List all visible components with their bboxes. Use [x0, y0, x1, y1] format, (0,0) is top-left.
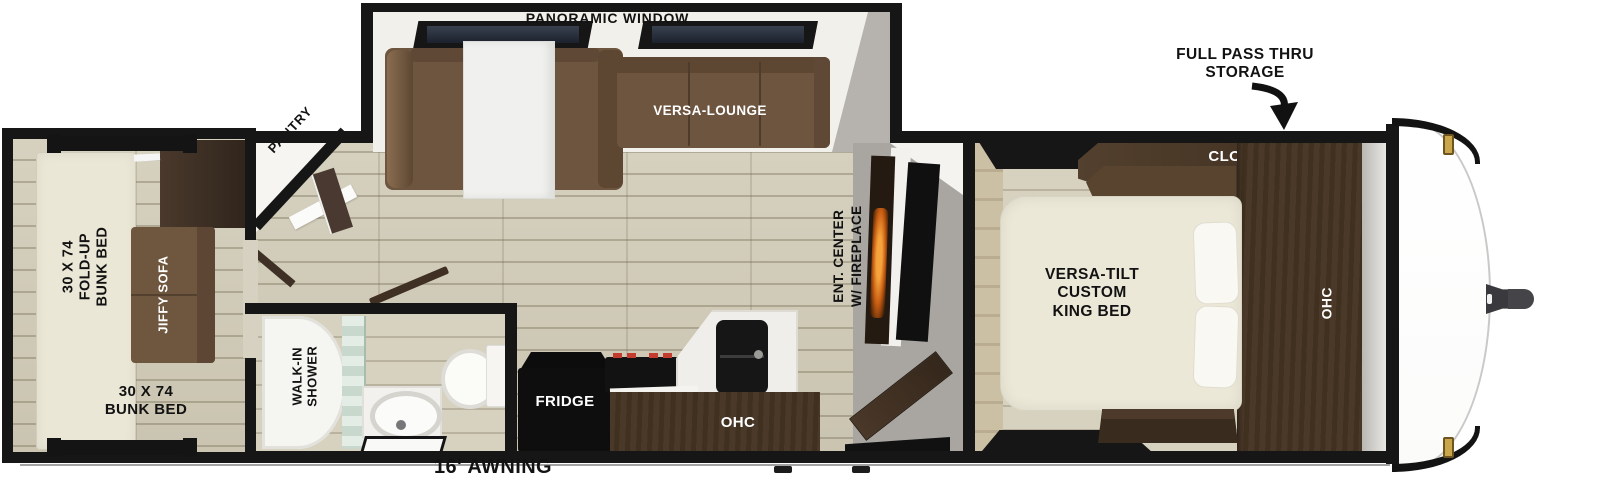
slideout-wall-left	[361, 3, 373, 143]
bedroom-wardrobe-ohc	[1237, 139, 1362, 455]
front-cap	[1399, 122, 1491, 468]
hitch-latch	[1487, 294, 1492, 304]
bathroom-top-wall	[245, 303, 517, 314]
bathroom-right-wall	[505, 303, 517, 463]
kitchen-ohc-label: OHC	[688, 414, 788, 432]
marker-light-icon	[1443, 437, 1454, 458]
wardrobe-side-gap	[1362, 143, 1386, 455]
awning-rail-line	[20, 464, 1390, 466]
bathroom-sink	[370, 391, 442, 441]
entry-step	[774, 466, 792, 473]
burner-knob	[649, 353, 658, 358]
awning-label: 16' AWNING	[413, 456, 573, 480]
slideout-wall-top	[361, 3, 902, 12]
entry-step	[852, 466, 870, 473]
burner-knob	[663, 353, 672, 358]
window-glass	[652, 26, 804, 43]
floorplan: VERSA-LOUNGE PANORAMIC WINDOW JIFFY SOFA…	[0, 0, 1600, 495]
bunkroom-walls	[2, 128, 256, 463]
fridge-label: FRIDGE	[518, 393, 612, 411]
front-cap-trim-bottom	[1392, 426, 1480, 472]
bedroom-top-wall	[975, 131, 1398, 143]
burner-knob	[613, 353, 622, 358]
bunkroom-window-top-cap	[183, 134, 197, 153]
burner-knob	[627, 353, 636, 358]
versa-lounge-arm-right	[814, 57, 830, 148]
sofa-bed-blanket	[463, 41, 555, 199]
front-cap-trim-top	[1392, 118, 1480, 164]
hitch-knob	[1508, 289, 1534, 309]
full-pass-thru-label: FULL PASS THRU STORAGE	[1160, 46, 1330, 83]
king-bed-label: VERSA-TILT CUSTOM KING BED	[1012, 266, 1172, 321]
bedroom-ohc-label: OHC	[1319, 273, 1336, 333]
bed-foot-bench-top	[1102, 409, 1234, 419]
bunkroom-window-top-cap	[47, 134, 61, 153]
faucet-icon	[396, 420, 406, 430]
kitchen-sink	[716, 320, 768, 394]
bed-pillow	[1193, 221, 1240, 304]
marker-light-icon	[1443, 134, 1454, 155]
bunkroom-window-bottom-cap	[183, 438, 197, 457]
walk-in-shower-label: WALK-IN SHOWER	[290, 321, 321, 431]
bed-pillow	[1193, 305, 1240, 388]
arrow-down-icon	[1248, 82, 1302, 132]
faucet-icon	[754, 350, 763, 359]
versa-lounge-backrest	[617, 57, 830, 73]
sofa-bed-arm-left	[387, 50, 413, 188]
bunkroom-doorway	[243, 240, 258, 358]
panoramic-window-label: PANORAMIC WINDOW	[500, 10, 715, 27]
toilet-tank	[486, 345, 507, 407]
bunkroom-window-bottom	[55, 440, 189, 455]
versa-lounge-label: VERSA-LOUNGE	[630, 103, 790, 119]
bedroom-left-wall	[963, 131, 975, 463]
ent-center-label: ENT. CENTER W/ FIREPLACE	[830, 191, 866, 321]
bedroom-floor-wood-strip	[975, 143, 1003, 451]
bunkroom-window-bottom-cap	[47, 438, 61, 457]
bunkroom-window-top	[55, 136, 189, 151]
front-wall	[1386, 124, 1399, 464]
slideout-wall-right	[890, 3, 902, 143]
top-wall-left-segment	[245, 131, 373, 143]
fireplace-flame-icon	[870, 208, 889, 318]
